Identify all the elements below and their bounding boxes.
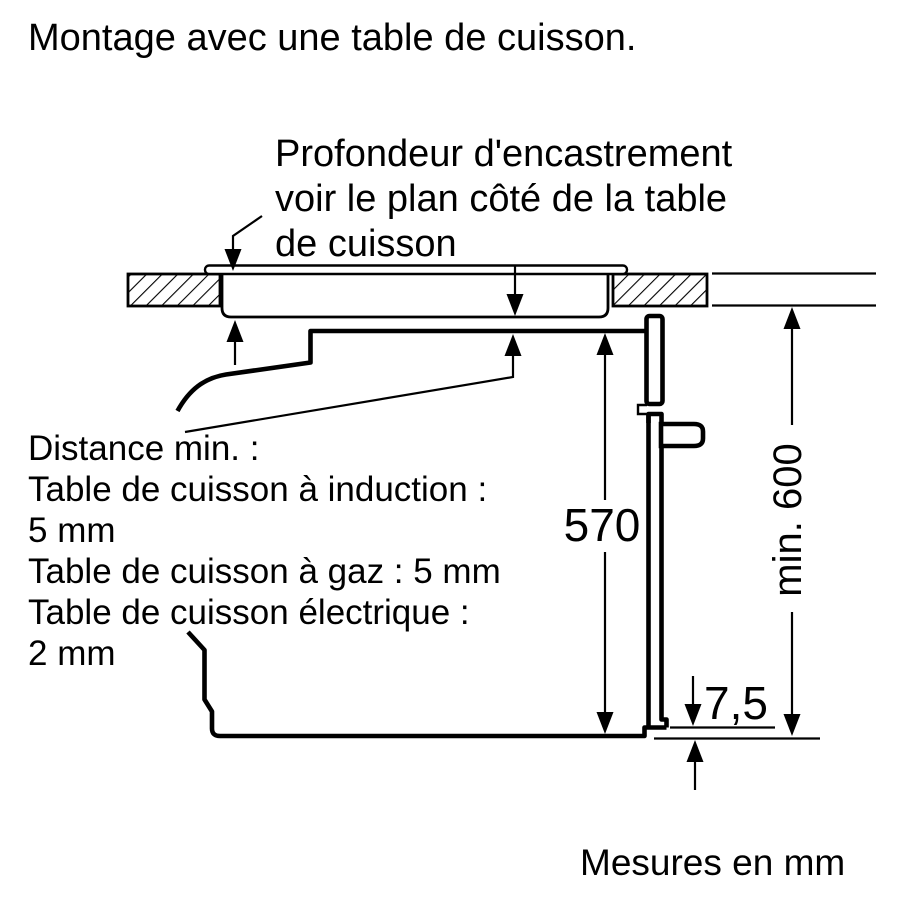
cooktop — [205, 266, 627, 318]
door-handle — [661, 424, 703, 446]
cooktop-body — [222, 272, 608, 317]
worktop-left-section — [128, 274, 220, 306]
note-line-3: 5 mm — [28, 510, 501, 551]
oven-top-profile — [178, 331, 649, 411]
units-note: Mesures en mm — [580, 843, 845, 883]
door-fascia — [647, 316, 663, 404]
cooktop-underside-arrow — [227, 320, 244, 365]
worktop-extension-lines — [712, 274, 876, 306]
note-line-6: 2 mm — [28, 633, 501, 674]
note-line-2: Table de cuisson à induction : — [28, 469, 501, 510]
min-distance-note: Distance min. : Table de cuisson à induc… — [28, 428, 501, 674]
dim-label-min-600: min. 600 — [766, 427, 810, 613]
dim-label-7-5: 7,5 — [704, 680, 780, 726]
door-panel-right — [662, 446, 667, 728]
door-seam — [638, 405, 647, 414]
manual-page: Montage avec une table de cuisson. Profo… — [0, 0, 900, 900]
note-line-5: Table de cuisson électrique : — [28, 592, 501, 633]
note-line-4: Table de cuisson à gaz : 5 mm — [28, 551, 501, 592]
callout-leader-arrow — [225, 216, 263, 271]
dim-label-570: 570 — [560, 502, 644, 548]
oven-door — [638, 316, 703, 728]
worktop-right-section — [613, 274, 707, 306]
note-line-1: Distance min. : — [28, 428, 501, 469]
cooktop-frame — [205, 266, 627, 275]
